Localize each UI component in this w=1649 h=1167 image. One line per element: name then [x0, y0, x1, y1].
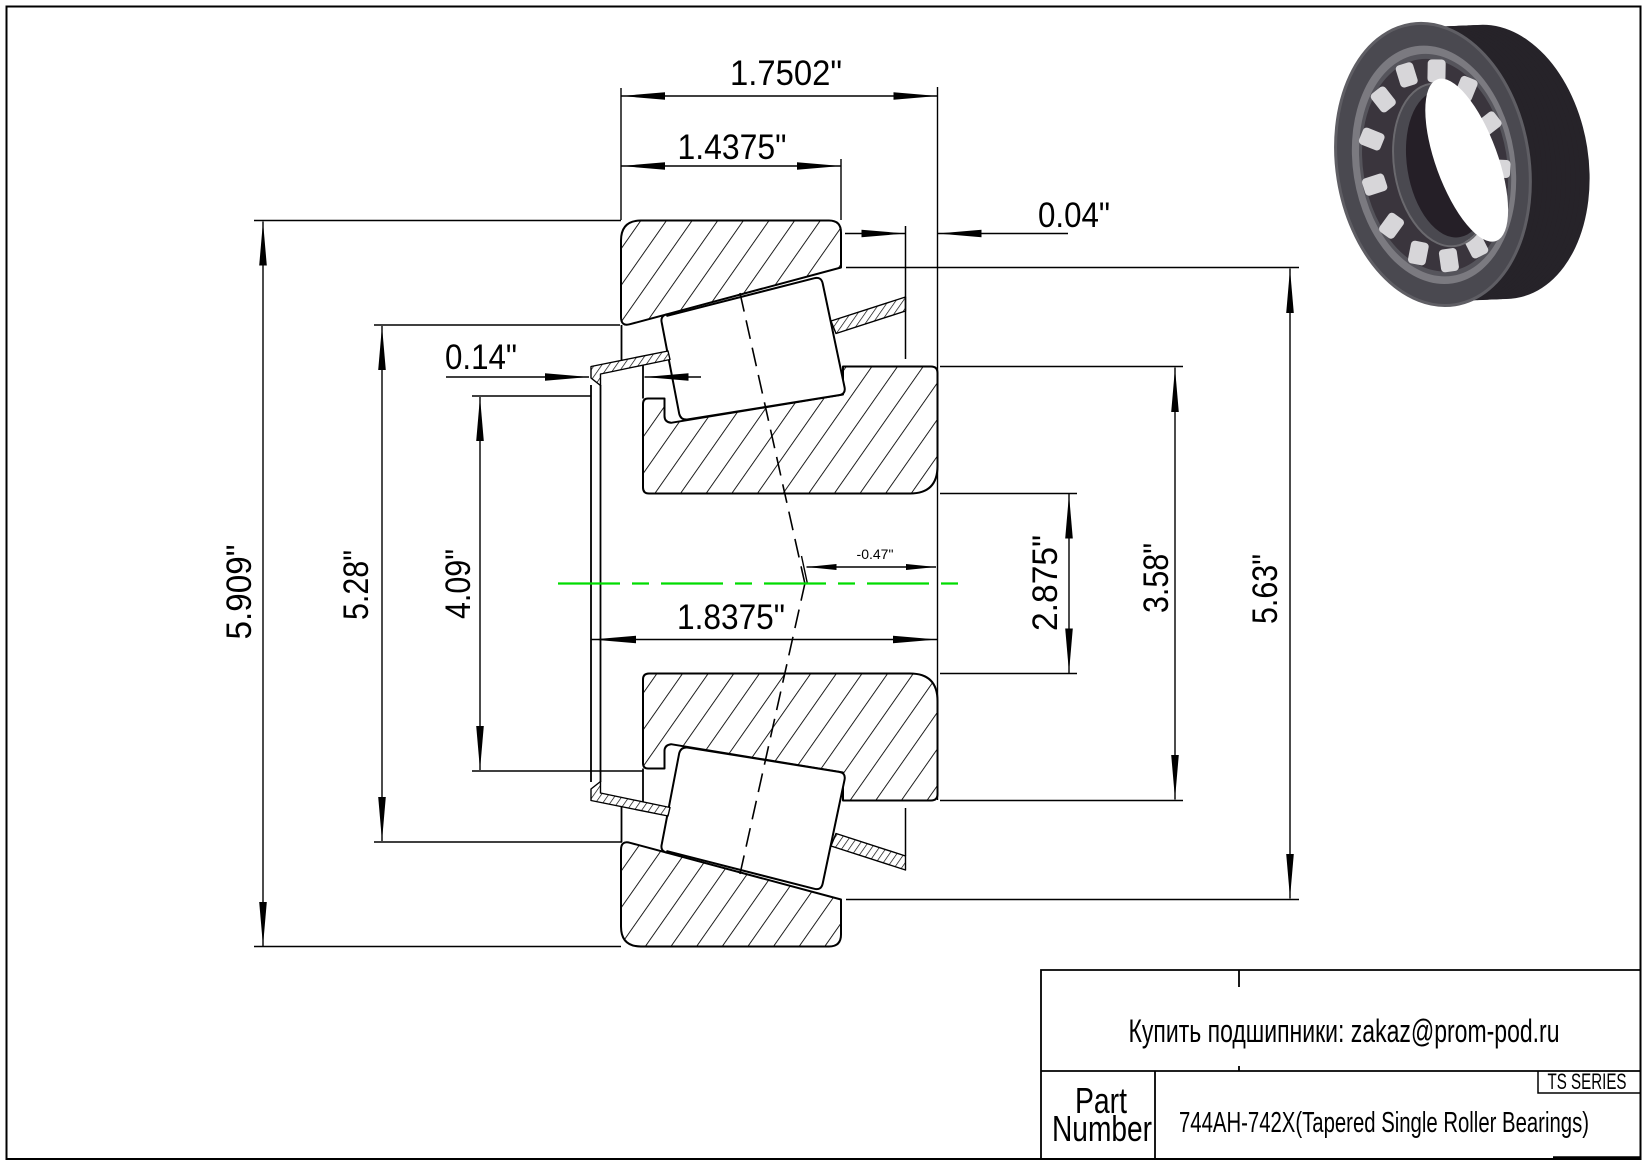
svg-text:4.09": 4.09" — [439, 549, 478, 619]
svg-text:1.7502": 1.7502" — [730, 54, 842, 93]
svg-text:1.4375": 1.4375" — [678, 128, 787, 167]
svg-text:5.28": 5.28" — [337, 550, 376, 620]
svg-text:Купить подшипники: zakaz@prom-: Купить подшипники: zakaz@prom-pod.ru — [1129, 1013, 1560, 1049]
svg-text:5.909": 5.909" — [220, 545, 259, 640]
svg-text:5.63": 5.63" — [1246, 554, 1285, 624]
svg-text:2.875": 2.875" — [1026, 535, 1065, 631]
svg-text:1.8375": 1.8375" — [677, 598, 785, 637]
svg-text:-0.47": -0.47" — [857, 546, 894, 562]
svg-text:0.14": 0.14" — [445, 338, 517, 377]
svg-text:TS SERIES: TS SERIES — [1548, 1069, 1627, 1094]
svg-text:3.58": 3.58" — [1137, 543, 1176, 613]
svg-text:744AH-742X(Tapered Single Roll: 744AH-742X(Tapered Single Roller Bearing… — [1179, 1107, 1589, 1139]
svg-text:Number: Number — [1052, 1108, 1152, 1149]
svg-text:0.04": 0.04" — [1038, 196, 1110, 235]
